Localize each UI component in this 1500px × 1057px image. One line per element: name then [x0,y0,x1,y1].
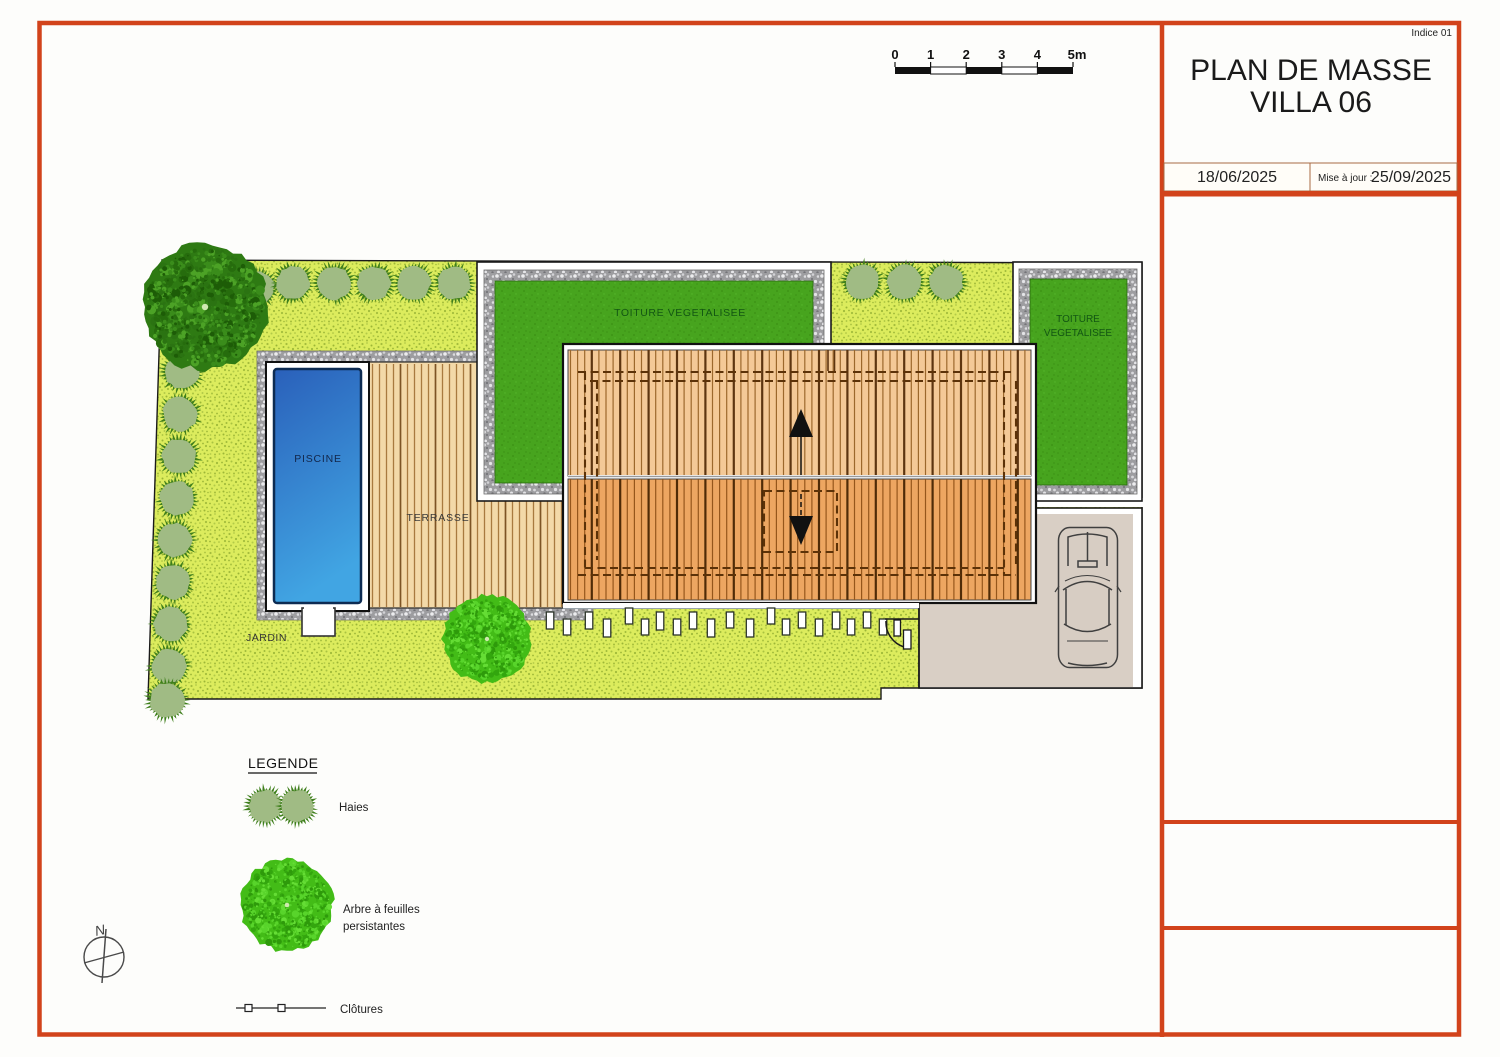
svg-text:TOITURE VEGETALISEE: TOITURE VEGETALISEE [614,307,746,319]
svg-text:PLAN DE MASSE: PLAN DE MASSE [1190,54,1432,87]
svg-text:VEGETALISEE: VEGETALISEE [1044,328,1113,339]
svg-text:Mise à jour :: Mise à jour : [1318,173,1372,184]
svg-text:4: 4 [1034,47,1042,62]
svg-text:Arbre à feuilles: Arbre à feuilles [343,904,420,916]
svg-text:2: 2 [963,47,970,62]
svg-text:0: 0 [891,47,898,62]
svg-text:1: 1 [927,47,934,62]
svg-text:JARDIN: JARDIN [246,632,287,644]
svg-text:TOITURE: TOITURE [1056,314,1100,325]
svg-text:18/06/2025: 18/06/2025 [1197,169,1277,186]
svg-text:25/09/2025: 25/09/2025 [1371,169,1451,186]
svg-text:Clôtures: Clôtures [340,1004,383,1016]
svg-text:LEGENDE: LEGENDE [248,755,318,771]
svg-text:Haies: Haies [339,802,369,814]
svg-text:3: 3 [998,47,1005,62]
svg-text:PISCINE: PISCINE [294,453,342,465]
svg-text:persistantes: persistantes [343,921,405,933]
svg-text:5m: 5m [1068,47,1087,62]
svg-text:Indice 01: Indice 01 [1411,28,1452,39]
svg-text:TERRASSE: TERRASSE [407,512,470,524]
svg-text:VILLA 06: VILLA 06 [1250,86,1372,119]
